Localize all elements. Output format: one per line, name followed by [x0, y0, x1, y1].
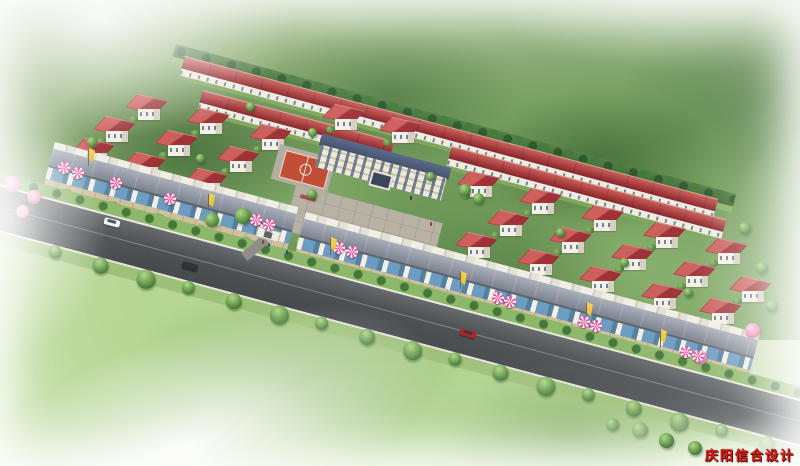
blossom-tree	[27, 190, 41, 204]
blossom-tree	[4, 176, 20, 192]
car-windows	[463, 330, 472, 335]
scatter-tree	[756, 262, 768, 274]
parasol	[692, 350, 704, 362]
pedestrian	[430, 222, 432, 226]
villa-window	[502, 228, 518, 232]
villa-window	[534, 206, 550, 210]
scatter-tree	[556, 228, 565, 237]
parasol	[504, 296, 516, 308]
car-windows	[107, 219, 116, 224]
blossom-tree	[745, 323, 760, 338]
villa-window	[656, 301, 672, 305]
scatter-tree	[620, 258, 629, 267]
villa-window	[337, 122, 353, 126]
villa-window	[470, 250, 486, 254]
villa-house	[325, 104, 365, 136]
pedestrian	[286, 250, 288, 254]
villa-window	[714, 316, 730, 320]
scatter-tree	[766, 300, 778, 312]
parasol	[578, 316, 590, 328]
scatter-tree	[632, 422, 648, 438]
scatter-tree	[688, 441, 702, 455]
rendering-canvas: 庆阳信合设计	[0, 0, 800, 466]
villa-window	[232, 164, 248, 168]
scatter-tree	[307, 189, 317, 199]
parasol	[250, 214, 262, 226]
banner-pole	[330, 238, 331, 255]
villa-window	[744, 294, 760, 298]
villa-window	[532, 267, 548, 271]
scatter-tree	[459, 184, 471, 196]
parasol	[164, 193, 176, 205]
pedestrian	[354, 228, 356, 232]
parasol	[346, 246, 358, 258]
banner-pole	[460, 272, 461, 289]
scatter-tree	[235, 208, 251, 224]
pedestrian	[410, 196, 412, 200]
scatter-tree	[659, 433, 674, 448]
parasol	[590, 320, 602, 332]
villa-house	[382, 117, 422, 149]
scatter-tree	[473, 193, 484, 204]
villa-window	[140, 112, 156, 116]
gate-opening	[263, 231, 273, 239]
villa-window	[394, 135, 410, 139]
pedestrian	[268, 243, 270, 247]
scatter-tree	[87, 137, 97, 147]
scatter-tree	[684, 288, 693, 297]
villa-window	[658, 240, 674, 244]
scatter-tree	[606, 418, 619, 431]
villa-window	[720, 256, 736, 260]
parasol	[110, 177, 122, 189]
parasol	[263, 219, 275, 231]
parasol	[72, 167, 84, 179]
scatter-tree	[426, 172, 435, 181]
banner-pole	[660, 330, 661, 347]
car-windows	[185, 263, 194, 268]
scatter-tree	[739, 222, 751, 234]
scatter-tree	[246, 102, 255, 111]
villa-window	[594, 284, 610, 288]
villa-window	[202, 126, 218, 130]
parasol	[492, 292, 504, 304]
banner-pole	[208, 194, 209, 211]
scatter-tree	[205, 213, 219, 227]
scatter-tree	[308, 128, 317, 137]
pedestrian	[262, 240, 264, 244]
villa-window	[170, 148, 186, 152]
parasol	[58, 162, 70, 174]
watermark-text: 庆阳信合设计	[705, 445, 795, 464]
villa-window	[264, 142, 280, 146]
banner-pole	[88, 149, 89, 166]
villa-yard-bush	[383, 139, 392, 146]
villa-window	[564, 245, 580, 249]
parasol	[680, 346, 692, 358]
blossom-tree	[16, 205, 29, 218]
villa-window	[688, 279, 704, 283]
scatter-tree	[196, 154, 205, 163]
villa-window	[596, 223, 612, 227]
villa-yard-bush	[326, 126, 335, 133]
